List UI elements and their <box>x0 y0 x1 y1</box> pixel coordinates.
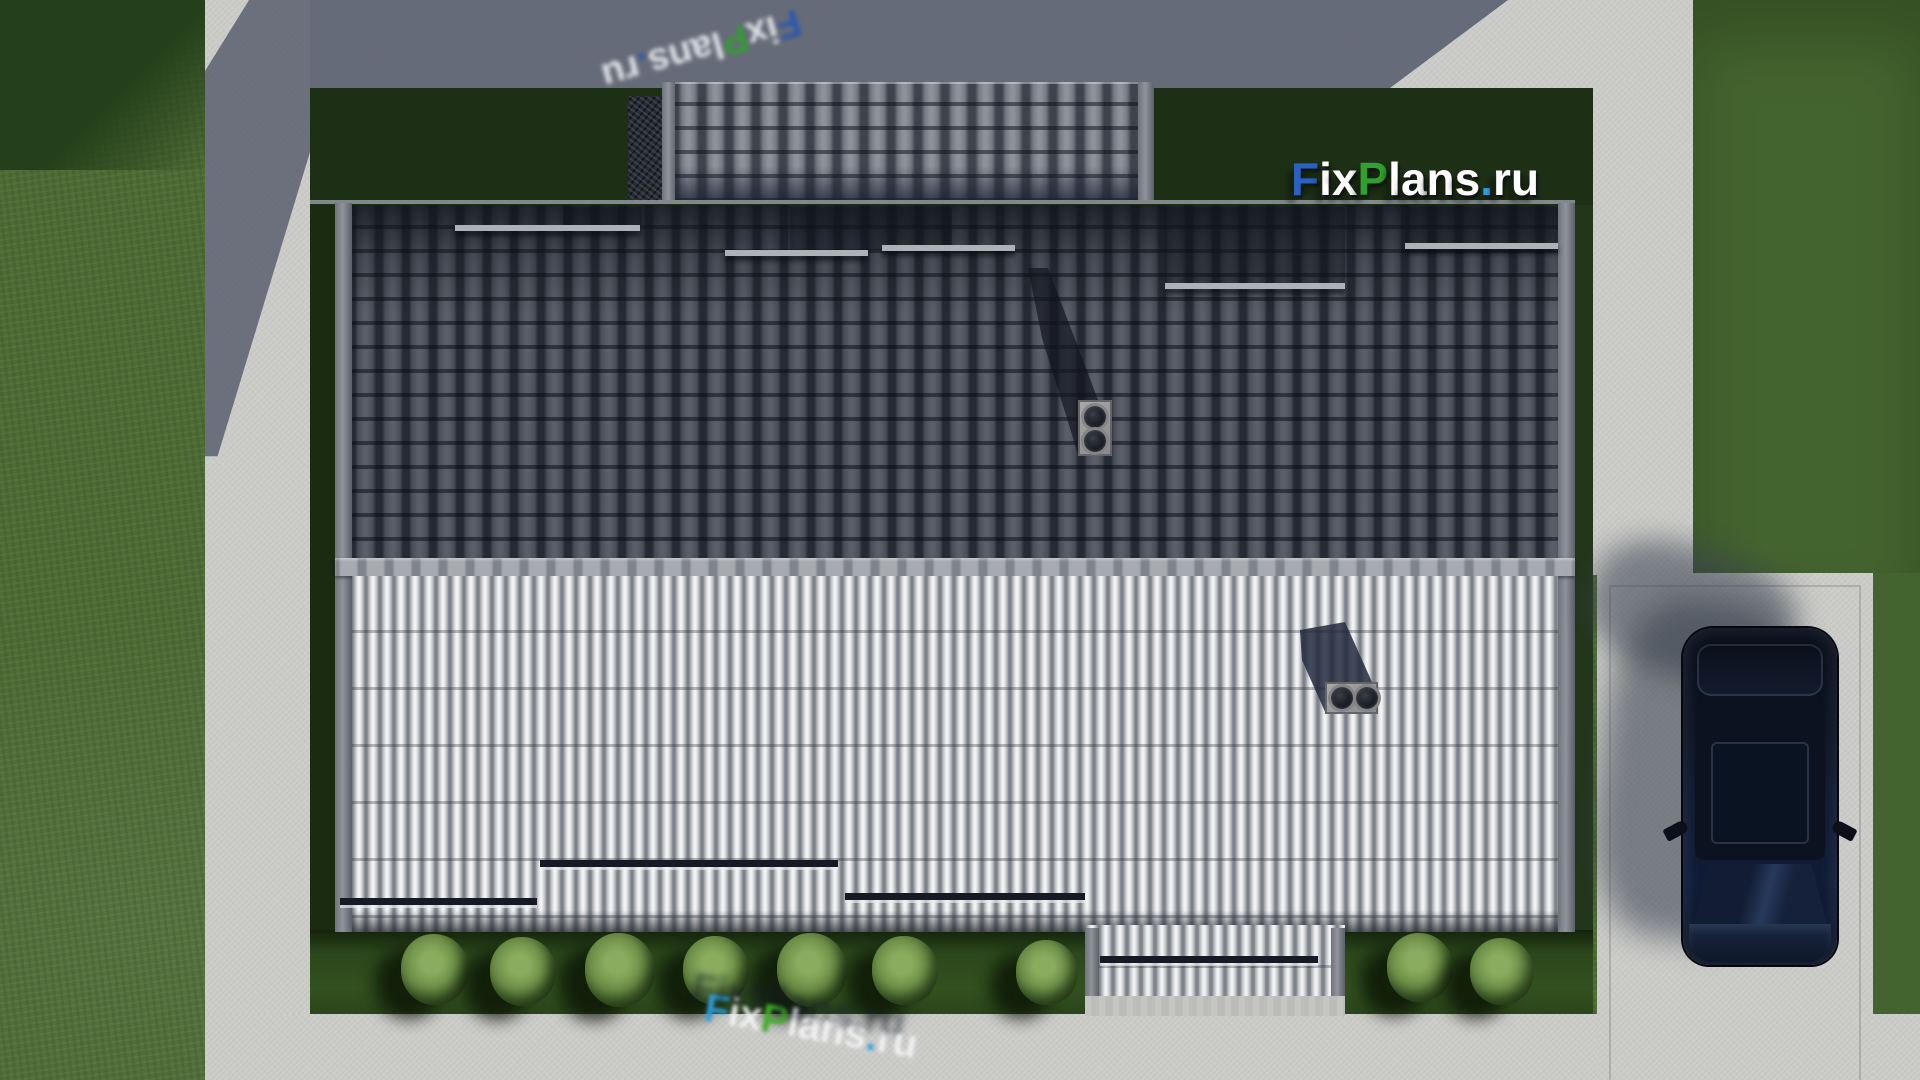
snow-guard <box>882 245 1015 251</box>
car-rear-window <box>1697 644 1823 696</box>
flue-cap <box>1331 687 1353 709</box>
roof-step-shadow <box>790 207 952 250</box>
roof-step-shadow <box>1165 207 1345 283</box>
garage-roof <box>675 82 1138 200</box>
flue-cap <box>1084 406 1106 428</box>
car-hood <box>1689 924 1831 962</box>
watermark-letter: F <box>1291 153 1319 205</box>
snow-guard <box>540 860 838 867</box>
watermark-letter: x <box>1332 153 1358 205</box>
snow-guard <box>1165 283 1345 289</box>
snow-guard <box>1405 243 1558 249</box>
snow-guard <box>845 893 1085 900</box>
watermark-letter: u <box>1511 153 1539 205</box>
roof-step-shadow <box>1405 207 1558 243</box>
shrub <box>1470 938 1534 1005</box>
shrub <box>490 937 556 1006</box>
porch-step <box>1085 996 1345 1016</box>
snow-guard <box>1100 956 1318 963</box>
watermark-letter: l <box>1388 153 1401 205</box>
snow-guard <box>455 225 640 231</box>
shrub <box>585 933 655 1007</box>
watermark-letter: s <box>1455 153 1481 205</box>
roof-north-slope <box>352 205 1558 560</box>
garage-fascia-right <box>1138 82 1154 200</box>
suv-car <box>1683 628 1837 965</box>
garage-fascia-left <box>662 82 676 200</box>
watermark-letter: n <box>1427 153 1455 205</box>
car-roof <box>1695 702 1825 860</box>
car-windshield <box>1693 864 1827 924</box>
watermark-letter: a <box>1401 153 1427 205</box>
roof-step-shadow <box>563 207 642 225</box>
flue-cap <box>1356 687 1378 709</box>
snow-guard <box>340 898 537 905</box>
watermark-letter: r <box>1493 153 1511 205</box>
roof-south-slope <box>352 576 1558 932</box>
watermark-letter: i <box>1319 153 1332 205</box>
shrub <box>777 933 847 1007</box>
site-logo-watermark: FixPlans.ru <box>1291 152 1539 206</box>
stone-chimney-wall <box>628 96 664 202</box>
shrub <box>1387 933 1453 1002</box>
car-sunroof <box>1713 744 1807 842</box>
watermark-letter: . <box>1480 153 1493 205</box>
flue-cap <box>1084 430 1106 452</box>
roof-ridge-cap <box>335 558 1575 576</box>
shrub <box>401 934 469 1005</box>
watermark-letter: P <box>1357 153 1388 205</box>
snow-guard <box>725 250 868 256</box>
render-canvas: FixPlans.ru FixPlans.ru FixPlans.ru <box>0 0 1920 1080</box>
shrub <box>1016 940 1078 1005</box>
shrub <box>872 936 938 1005</box>
